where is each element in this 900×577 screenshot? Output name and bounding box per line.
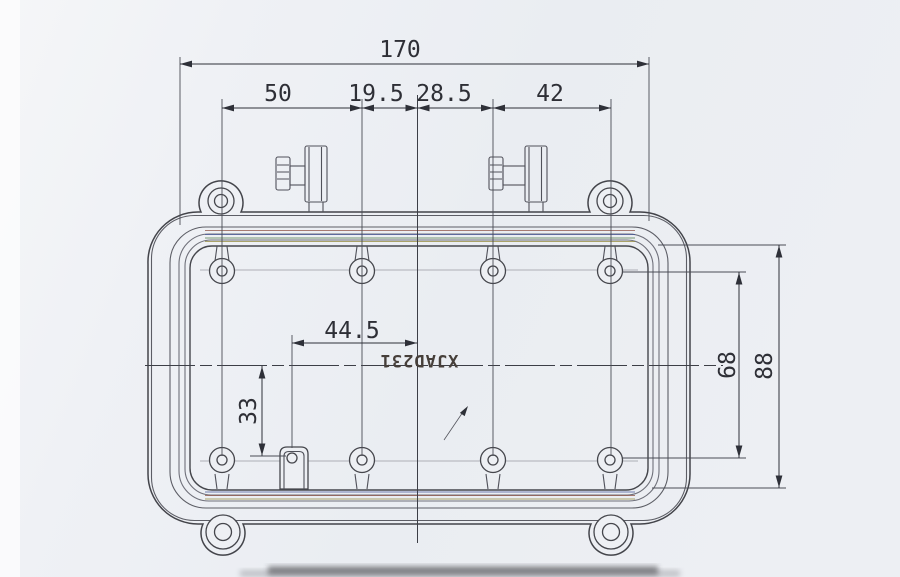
part-number-text: XJAD231	[380, 350, 459, 370]
technical-drawing: 170 50 19.5 28.5 42 44.5 33	[0, 0, 900, 577]
scan-edge-smudge-soft	[240, 570, 680, 577]
mounting-hole	[215, 524, 232, 541]
dim-label-42: 42	[536, 81, 564, 107]
dim-label-33: 33	[236, 397, 262, 425]
mounting-hole	[215, 195, 228, 208]
dim-label-68: 68	[715, 351, 741, 379]
mounting-hole	[603, 524, 620, 541]
scan-left-margin	[0, 0, 20, 577]
dim-label-44-5: 44.5	[324, 318, 379, 344]
square-boss-bottom	[280, 447, 308, 489]
drawing-sheet: 170 50 19.5 28.5 42 44.5 33	[0, 0, 900, 577]
dim-label-19-5: 19.5	[348, 81, 403, 107]
mounting-hole	[604, 195, 617, 208]
mounting-ear-top-right	[597, 188, 623, 214]
mounting-ear-bottom-left	[206, 515, 240, 549]
dim-label-50: 50	[264, 81, 292, 107]
mounting-ear-top-left	[208, 188, 234, 214]
dim-label-170: 170	[379, 37, 421, 63]
dim-label-28-5: 28.5	[416, 81, 471, 107]
dim-label-88: 88	[752, 352, 778, 380]
mounting-ear-bottom-right	[594, 515, 628, 549]
